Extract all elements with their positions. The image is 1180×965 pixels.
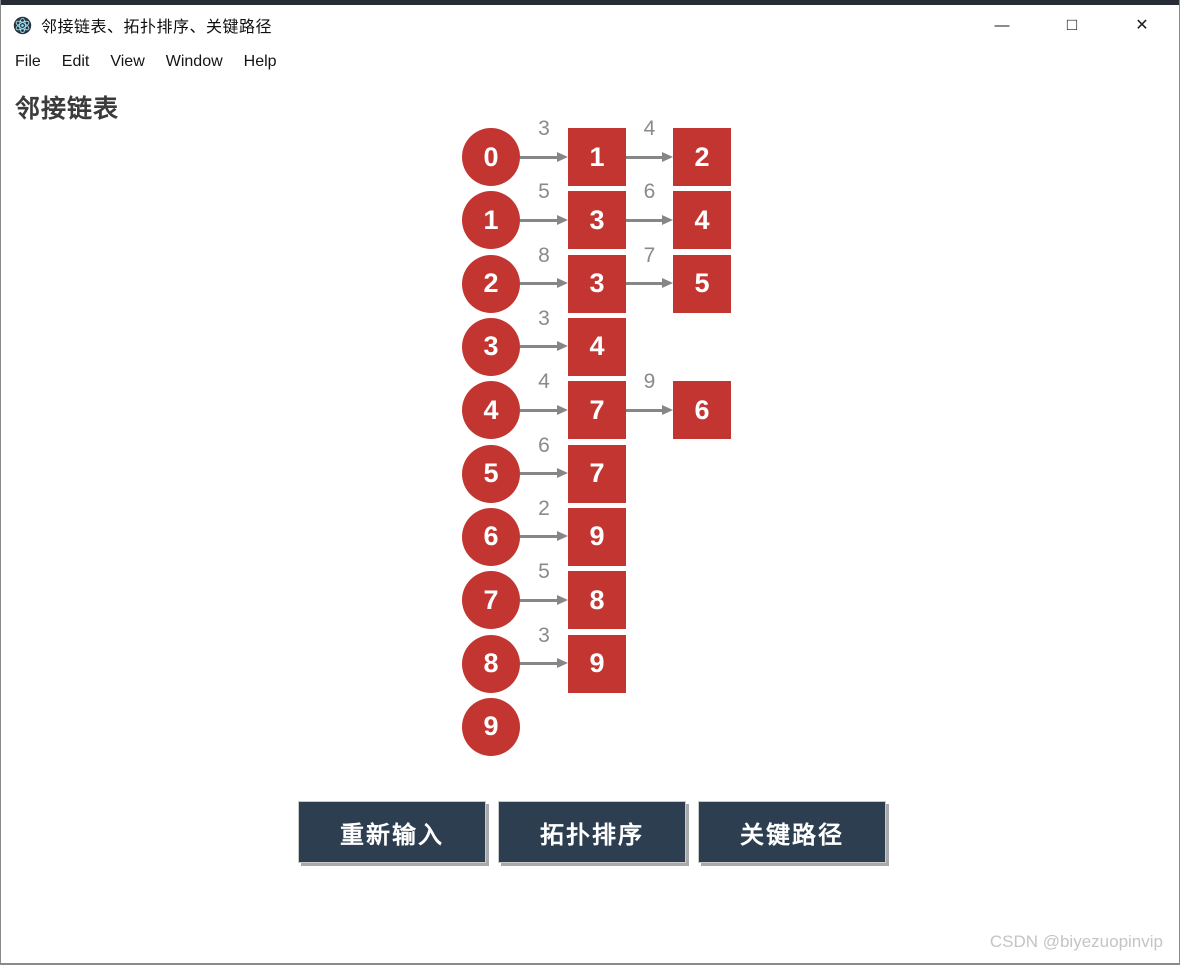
- edge-arrow-icon: [626, 409, 663, 412]
- node-label: 7: [483, 585, 498, 616]
- node-label: 8: [483, 648, 498, 679]
- graph-node-circle: 9: [462, 698, 520, 756]
- node-label: 8: [589, 585, 604, 616]
- arrowhead-icon: [557, 595, 568, 605]
- edge-weight: 9: [638, 370, 662, 394]
- arrowhead-icon: [557, 658, 568, 668]
- graph-node-circle: 8: [462, 635, 520, 693]
- node-label: 5: [483, 458, 498, 489]
- arrowhead-icon: [557, 215, 568, 225]
- edge-arrow-icon: [520, 219, 558, 222]
- edge-arrow-icon: [520, 535, 558, 538]
- node-label: 7: [589, 458, 604, 489]
- graph-node-square: 9: [568, 635, 626, 693]
- graph-node-circle: 6: [462, 508, 520, 566]
- edge-arrow-icon: [626, 219, 663, 222]
- arrowhead-icon: [557, 152, 568, 162]
- graph-node-square: 4: [673, 191, 731, 249]
- edge-weight: 5: [532, 180, 556, 204]
- node-label: 7: [589, 395, 604, 426]
- arrowhead-icon: [557, 405, 568, 415]
- graph-node-circle: 5: [462, 445, 520, 503]
- graph-node-circle: 4: [462, 381, 520, 439]
- node-label: 2: [483, 268, 498, 299]
- graph-node-circle: 7: [462, 571, 520, 629]
- edge-weight: 6: [532, 434, 556, 458]
- edge-weight: 6: [638, 180, 662, 204]
- node-label: 6: [694, 395, 709, 426]
- edge-arrow-icon: [626, 156, 663, 159]
- critical-path-button[interactable]: 关键路径: [698, 801, 886, 863]
- edge-arrow-icon: [520, 472, 558, 475]
- edge-weight: 8: [532, 244, 556, 268]
- arrowhead-icon: [557, 468, 568, 478]
- arrowhead-icon: [557, 278, 568, 288]
- edge-weight: 7: [638, 244, 662, 268]
- node-label: 1: [589, 142, 604, 173]
- graph-node-square: 5: [673, 255, 731, 313]
- edge-arrow-icon: [520, 662, 558, 665]
- edge-weight: 3: [532, 624, 556, 648]
- graph-node-circle: 1: [462, 191, 520, 249]
- edge-weight: 4: [638, 117, 662, 141]
- graph-node-square: 1: [568, 128, 626, 186]
- node-label: 9: [589, 648, 604, 679]
- arrowhead-icon: [662, 278, 673, 288]
- graph-node-square: 6: [673, 381, 731, 439]
- arrowhead-icon: [662, 215, 673, 225]
- reinput-button[interactable]: 重新输入: [298, 801, 486, 863]
- edge-arrow-icon: [520, 409, 558, 412]
- arrowhead-icon: [557, 341, 568, 351]
- arrowhead-icon: [557, 531, 568, 541]
- node-label: 2: [694, 142, 709, 173]
- graph-node-square: 4: [568, 318, 626, 376]
- graph-node-square: 2: [673, 128, 731, 186]
- graph-node-circle: 3: [462, 318, 520, 376]
- node-label: 1: [483, 205, 498, 236]
- graph-node-square: 3: [568, 191, 626, 249]
- watermark: CSDN @biyezuopinvip: [990, 932, 1163, 952]
- edge-weight: 3: [532, 307, 556, 331]
- node-label: 3: [589, 268, 604, 299]
- edge-weight: 4: [532, 370, 556, 394]
- node-label: 5: [694, 268, 709, 299]
- edge-weight: 2: [532, 497, 556, 521]
- topological-sort-button[interactable]: 拓扑排序: [498, 801, 686, 863]
- node-label: 0: [483, 142, 498, 173]
- edge-arrow-icon: [520, 345, 558, 348]
- node-label: 9: [483, 711, 498, 742]
- node-label: 3: [483, 331, 498, 362]
- edge-arrow-icon: [520, 156, 558, 159]
- edge-weight: 5: [532, 560, 556, 584]
- node-label: 3: [589, 205, 604, 236]
- node-label: 6: [483, 521, 498, 552]
- action-buttons: 重新输入 拓扑排序 关键路径: [298, 801, 898, 863]
- graph-node-square: 3: [568, 255, 626, 313]
- edge-arrow-icon: [520, 282, 558, 285]
- graph-node-square: 9: [568, 508, 626, 566]
- node-label: 9: [589, 521, 604, 552]
- node-label: 4: [483, 395, 498, 426]
- edge-weight: 3: [532, 117, 556, 141]
- graph-node-square: 8: [568, 571, 626, 629]
- graph-node-circle: 2: [462, 255, 520, 313]
- arrowhead-icon: [662, 152, 673, 162]
- node-label: 4: [589, 331, 604, 362]
- edge-arrow-icon: [520, 599, 558, 602]
- arrowhead-icon: [662, 405, 673, 415]
- graph-node-square: 7: [568, 445, 626, 503]
- graph-node-square: 7: [568, 381, 626, 439]
- edge-arrow-icon: [626, 282, 663, 285]
- graph-node-circle: 0: [462, 128, 520, 186]
- node-label: 4: [694, 205, 709, 236]
